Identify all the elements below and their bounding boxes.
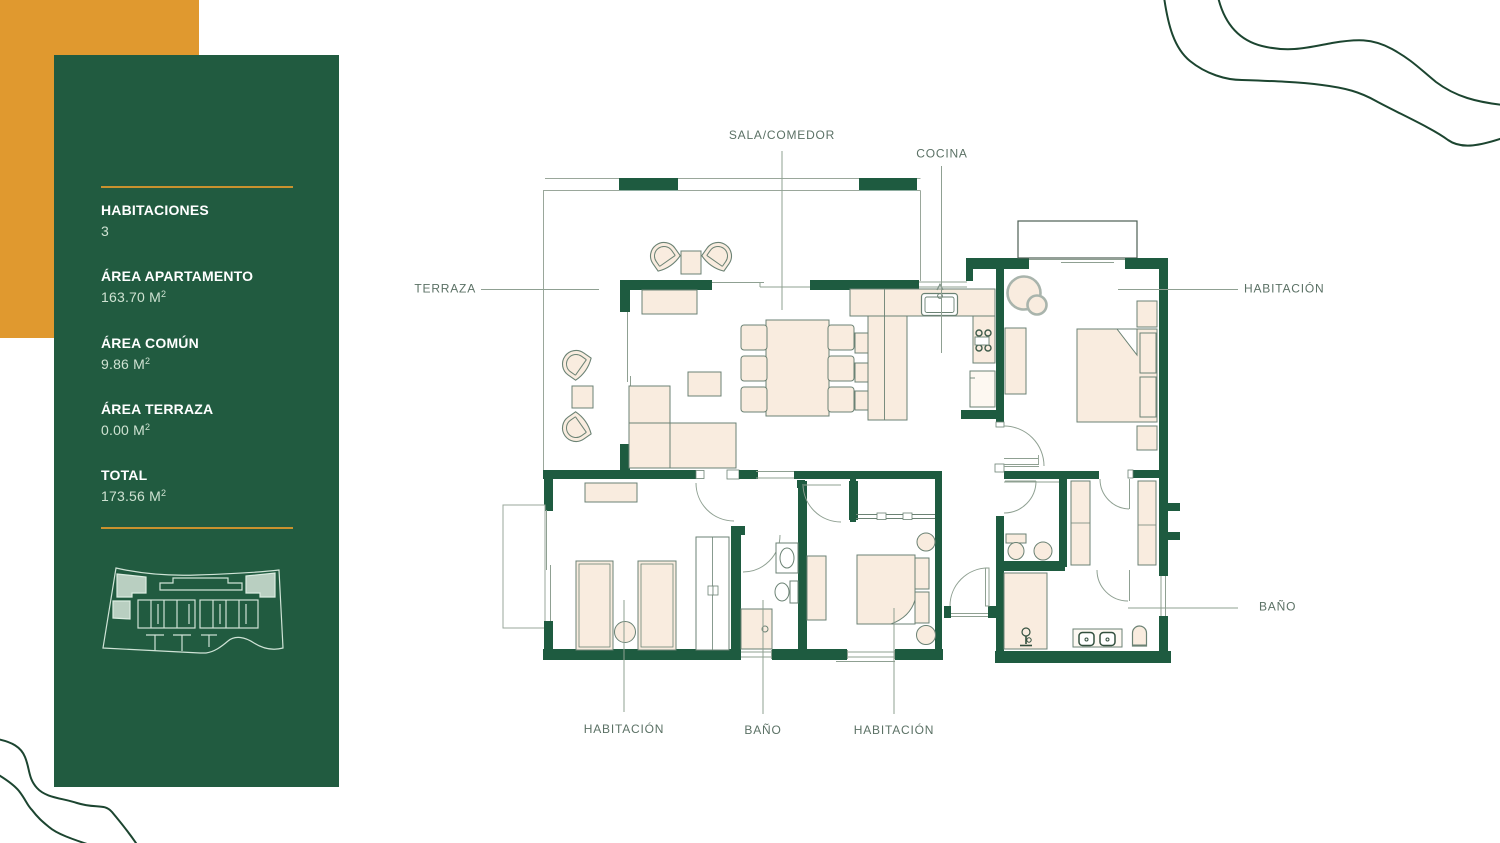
svg-text:HABITACIÓN: HABITACIÓN — [584, 721, 664, 736]
svg-text:BAÑO: BAÑO — [744, 723, 781, 737]
svg-text:SALA/COMEDOR: SALA/COMEDOR — [729, 128, 835, 142]
svg-text:HABITACIÓN: HABITACIÓN — [854, 722, 934, 737]
svg-text:TERRAZA: TERRAZA — [414, 282, 476, 296]
svg-text:HABITACIÓN: HABITACIÓN — [1244, 281, 1324, 296]
svg-text:COCINA: COCINA — [916, 147, 967, 161]
svg-text:BAÑO: BAÑO — [1259, 600, 1296, 614]
